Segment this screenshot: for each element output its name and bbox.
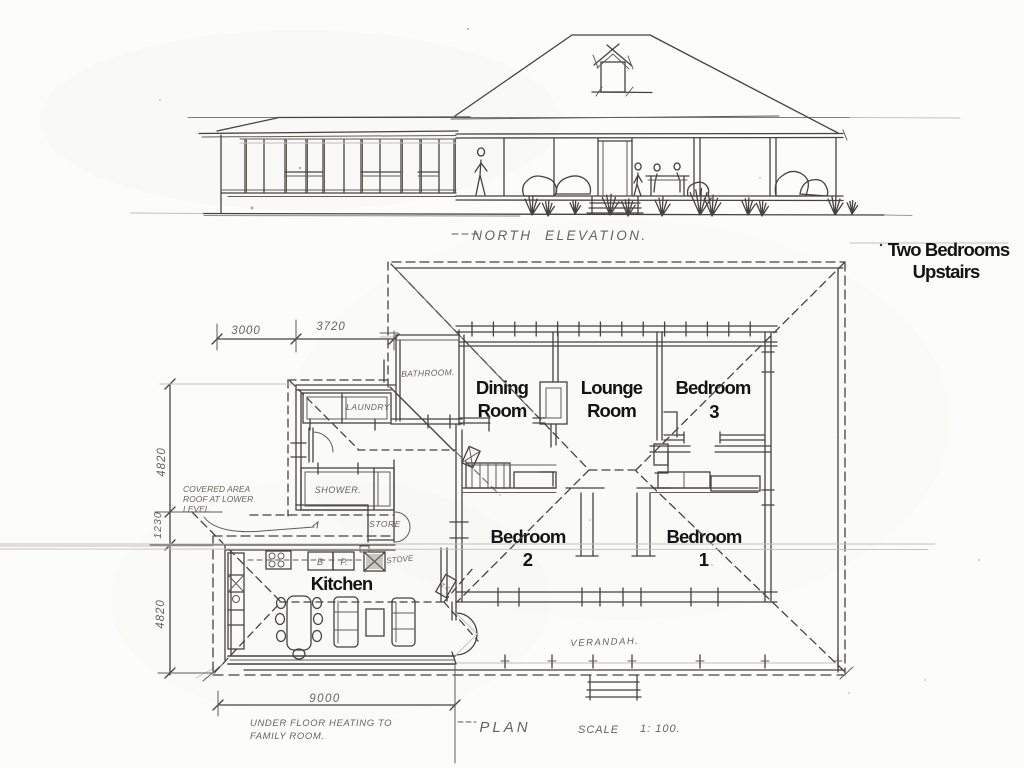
svg-text:1: 100.: 1: 100.	[640, 723, 681, 735]
svg-text:ROOF AT LOWER: ROOF AT LOWER	[183, 494, 253, 504]
svg-text:BATHROOM.: BATHROOM.	[401, 367, 455, 379]
svg-text:3720: 3720	[316, 321, 346, 333]
svg-text:LEVEL: LEVEL	[183, 504, 210, 514]
svg-text:LAUNDRY: LAUNDRY	[346, 402, 391, 412]
svg-text:STORE: STORE	[369, 519, 401, 529]
svg-text:4820: 4820	[156, 447, 168, 477]
svg-text:1230: 1230	[152, 511, 164, 538]
svg-text:Bedroom: Bedroom	[676, 377, 751, 398]
svg-text:Two Bedrooms: Two Bedrooms	[888, 239, 1010, 260]
svg-text:Kitchen: Kitchen	[311, 573, 373, 594]
svg-text:3: 3	[709, 401, 719, 422]
svg-text:SCALE: SCALE	[578, 724, 619, 736]
svg-text:9000: 9000	[309, 693, 341, 705]
svg-text:Room: Room	[587, 400, 636, 421]
svg-text:2: 2	[523, 549, 533, 570]
svg-text:4820: 4820	[155, 599, 167, 629]
svg-text:NORTH ELEVATION.: NORTH ELEVATION.	[472, 228, 648, 243]
svg-text:P.: P.	[340, 557, 347, 567]
svg-text:Lounge: Lounge	[581, 377, 643, 398]
svg-text:COVERED AREA: COVERED AREA	[183, 484, 251, 494]
svg-text:SHOWER.: SHOWER.	[315, 485, 362, 495]
svg-text:FAMILY ROOM.: FAMILY ROOM.	[250, 731, 325, 742]
svg-text:UNDER FLOOR HEATING TO: UNDER FLOOR HEATING TO	[250, 718, 392, 729]
svg-text:1: 1	[699, 549, 709, 570]
svg-text:PLAN: PLAN	[479, 719, 530, 736]
svg-text:B: B	[317, 557, 323, 567]
svg-text:Upstairs: Upstairs	[913, 261, 980, 282]
